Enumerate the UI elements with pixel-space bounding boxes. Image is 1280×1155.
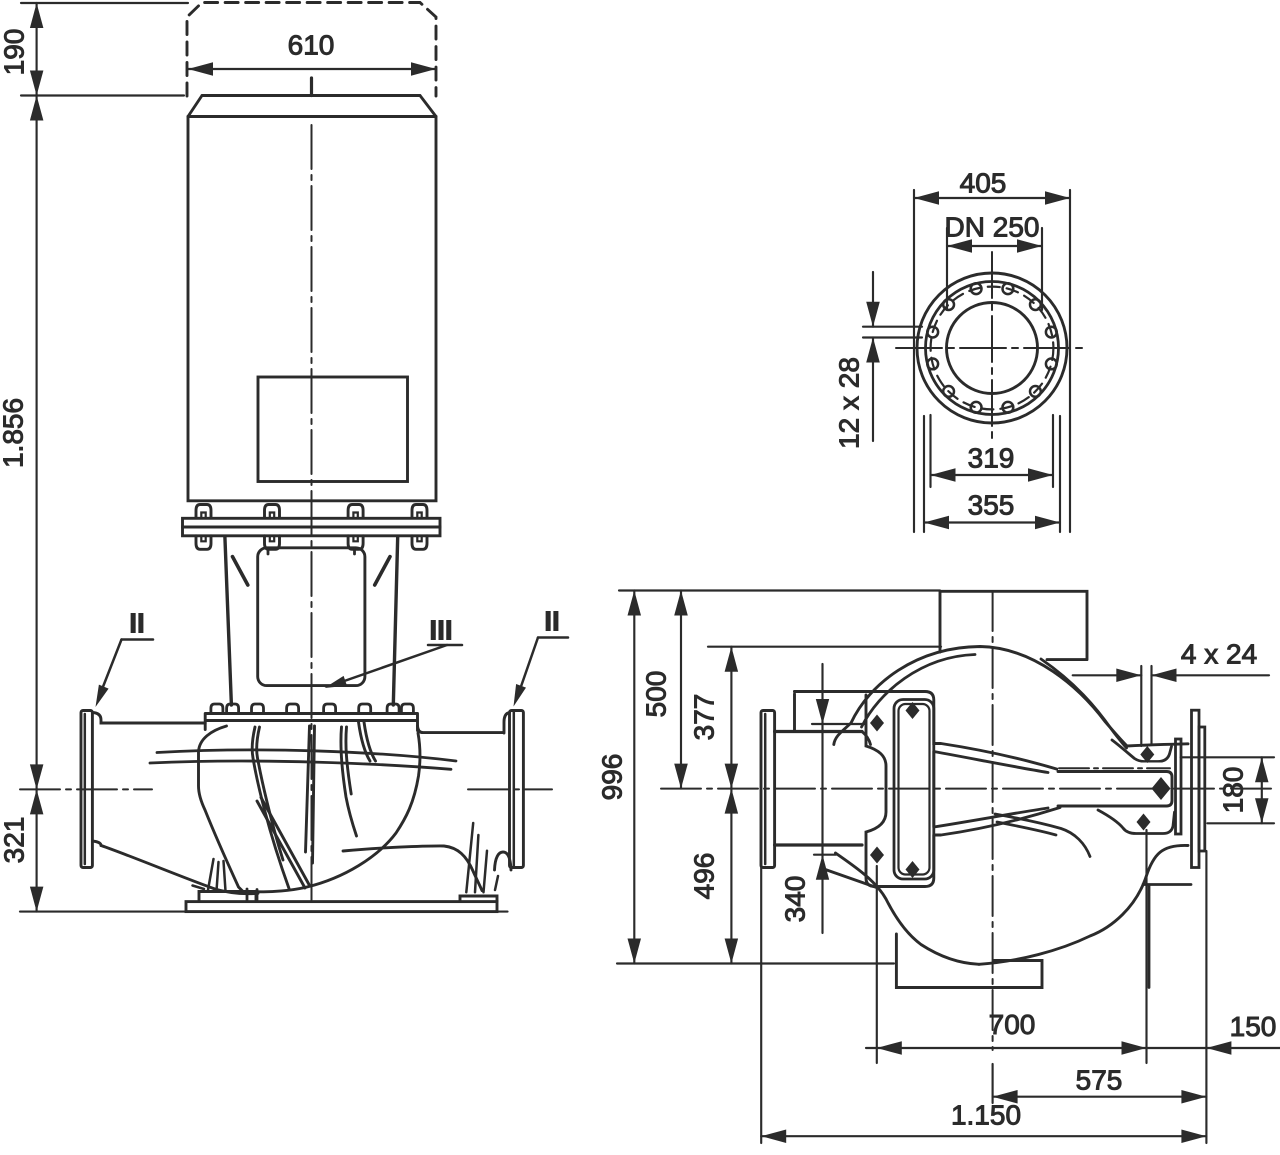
svg-text:150: 150: [1230, 1011, 1277, 1042]
svg-text:405: 405: [960, 168, 1007, 199]
svg-text:4 x 24: 4 x 24: [1181, 639, 1257, 670]
svg-text:496: 496: [689, 853, 720, 900]
svg-text:996: 996: [597, 754, 628, 801]
svg-text:575: 575: [1076, 1065, 1123, 1096]
svg-text:190: 190: [0, 29, 30, 76]
svg-text:DN 250: DN 250: [945, 212, 1040, 243]
svg-text:319: 319: [968, 443, 1015, 474]
svg-text:III: III: [429, 615, 452, 646]
svg-text:377: 377: [689, 694, 720, 741]
svg-text:1.856: 1.856: [0, 398, 29, 468]
svg-text:340: 340: [780, 876, 811, 923]
svg-text:610: 610: [288, 30, 335, 61]
svg-text:1.150: 1.150: [951, 1100, 1021, 1131]
svg-text:II: II: [544, 606, 560, 637]
svg-text:355: 355: [968, 490, 1015, 521]
svg-text:II: II: [129, 608, 145, 639]
svg-text:321: 321: [0, 817, 30, 864]
svg-text:180: 180: [1218, 767, 1249, 814]
svg-text:500: 500: [641, 671, 672, 718]
svg-text:700: 700: [989, 1009, 1036, 1040]
svg-text:12 x 28: 12 x 28: [834, 357, 865, 449]
